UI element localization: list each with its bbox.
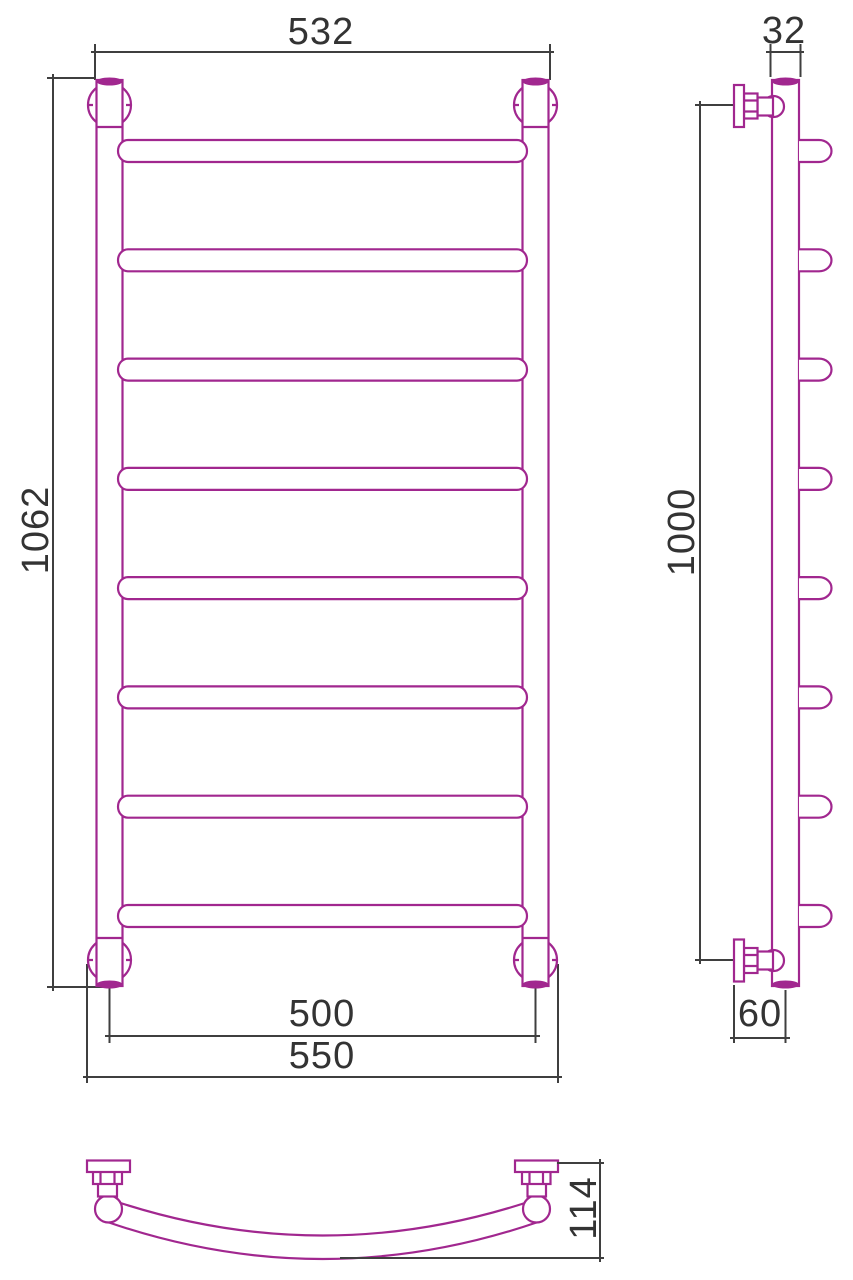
- rung: [118, 359, 527, 381]
- bracket-cylinder: [758, 98, 774, 116]
- bottom-dim-depth: 114: [340, 1159, 605, 1262]
- rung: [118, 686, 527, 708]
- side-dim-diameter: 32: [762, 10, 806, 77]
- bracket-cylinder: [98, 1184, 117, 1197]
- front-view: 532 1062 500 550: [15, 11, 562, 1083]
- curved-rung-inner: [108, 1222, 539, 1259]
- tube-cap: [523, 981, 549, 989]
- tube-cap: [523, 78, 549, 86]
- side-product: [734, 78, 831, 989]
- tube-cap: [97, 981, 123, 989]
- dim-label-500: 500: [289, 993, 355, 1035]
- dim-label-550: 550: [289, 1035, 355, 1077]
- side-rung-stubs: [799, 140, 831, 927]
- dim-label-1062: 1062: [15, 486, 57, 575]
- bracket-nut: [744, 94, 758, 119]
- left-tube: [97, 80, 123, 986]
- dim-label-32: 32: [762, 10, 806, 52]
- side-dim-offset: 60: [730, 985, 790, 1043]
- bracket-cylinder: [528, 1184, 547, 1197]
- dim-label-114: 114: [563, 1176, 605, 1240]
- bracket-flange: [87, 1161, 130, 1173]
- bottom-mount-right: [515, 1161, 558, 1223]
- bracket-cylinder: [758, 952, 774, 970]
- technical-drawing: 532 1062 500 550: [0, 0, 853, 1280]
- bracket-ball: [523, 1196, 550, 1223]
- rung: [118, 905, 527, 927]
- drawing-canvas: 532 1062 500 550: [0, 0, 853, 1280]
- tube-cap: [772, 78, 799, 86]
- rung: [118, 577, 527, 599]
- bracket-flange: [734, 940, 744, 982]
- bottom-view: 114: [87, 1159, 605, 1262]
- rung: [118, 140, 527, 162]
- front-rungs: [118, 140, 527, 927]
- bracket-nut: [744, 948, 758, 973]
- bracket-ball: [95, 1196, 122, 1223]
- bracket-flange: [515, 1161, 558, 1173]
- dim-label-1000: 1000: [661, 488, 703, 577]
- bracket-flange: [734, 85, 744, 127]
- front-dim-top-width: 532: [91, 11, 554, 80]
- curved-rung-outer: [121, 1203, 526, 1236]
- side-tube: [772, 80, 799, 986]
- bracket-nut: [93, 1172, 122, 1185]
- side-dim-mounts: 1000: [661, 101, 736, 964]
- tube-cap: [772, 981, 799, 989]
- dim-label-532: 532: [288, 11, 354, 53]
- rung: [118, 249, 527, 271]
- side-view: 32 1000 60: [661, 10, 831, 1043]
- bottom-mount-left: [87, 1161, 130, 1223]
- front-product: [88, 78, 557, 989]
- right-tube: [523, 80, 549, 986]
- ball-center-ticks: [89, 105, 556, 960]
- dim-label-60: 60: [738, 993, 782, 1035]
- rung: [118, 796, 527, 818]
- tube-cap: [97, 78, 123, 86]
- rung: [118, 468, 527, 490]
- bracket-nut: [522, 1172, 551, 1185]
